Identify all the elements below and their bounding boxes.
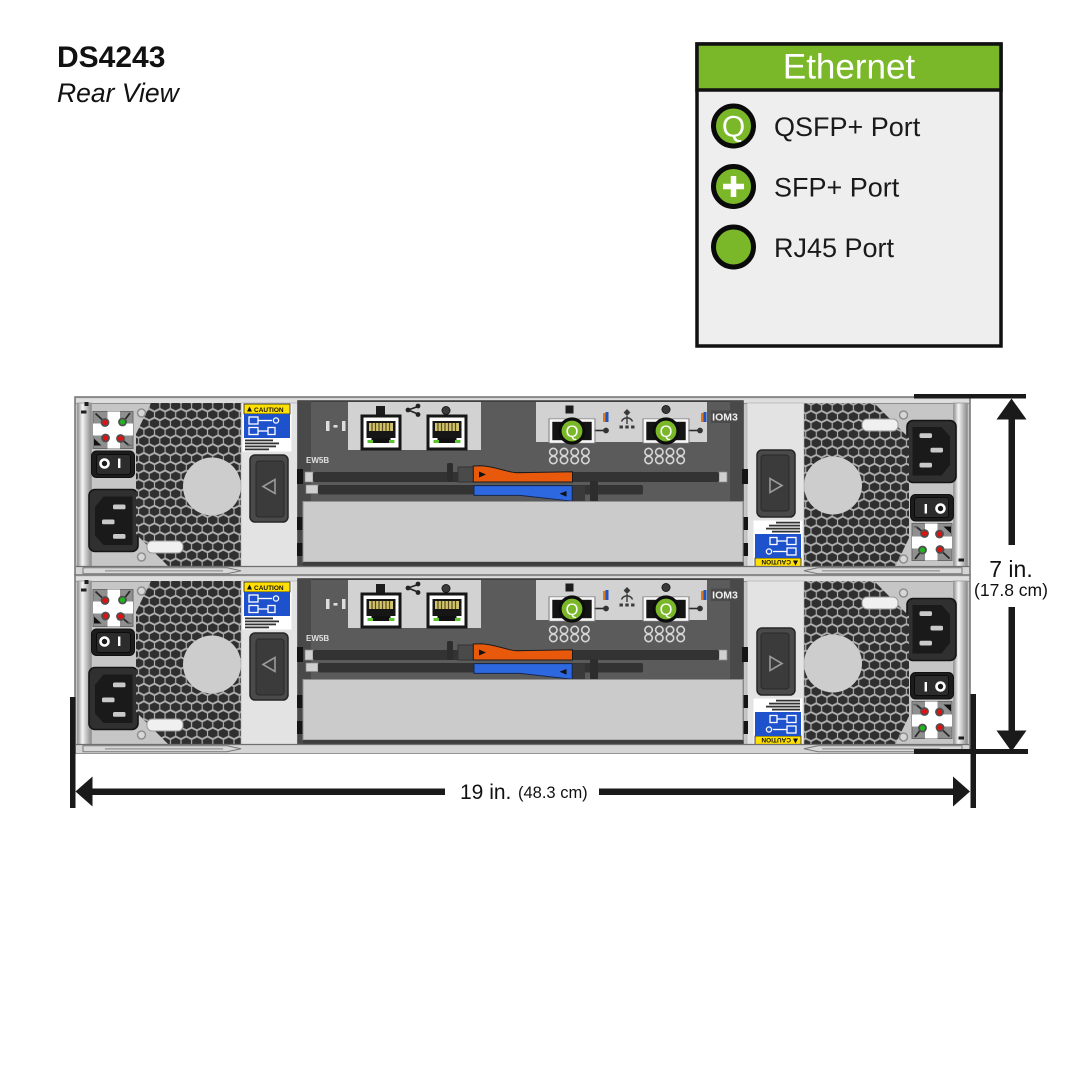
svg-text:Q: Q [722, 111, 745, 144]
svg-text:7 in.: 7 in. [989, 556, 1032, 582]
svg-text:Rear View: Rear View [57, 78, 181, 108]
svg-text:SFP+ Port: SFP+ Port [774, 173, 900, 203]
svg-text:RJ45 Port: RJ45 Port [774, 233, 895, 263]
svg-text:QSFP+ Port: QSFP+ Port [774, 112, 921, 142]
svg-text:Ethernet: Ethernet [783, 48, 916, 87]
svg-text:(48.3 cm): (48.3 cm) [518, 784, 588, 802]
svg-text:19 in.: 19 in. [460, 781, 511, 804]
svg-text:(17.8 cm): (17.8 cm) [974, 580, 1048, 600]
svg-text:DS4243: DS4243 [57, 41, 165, 74]
